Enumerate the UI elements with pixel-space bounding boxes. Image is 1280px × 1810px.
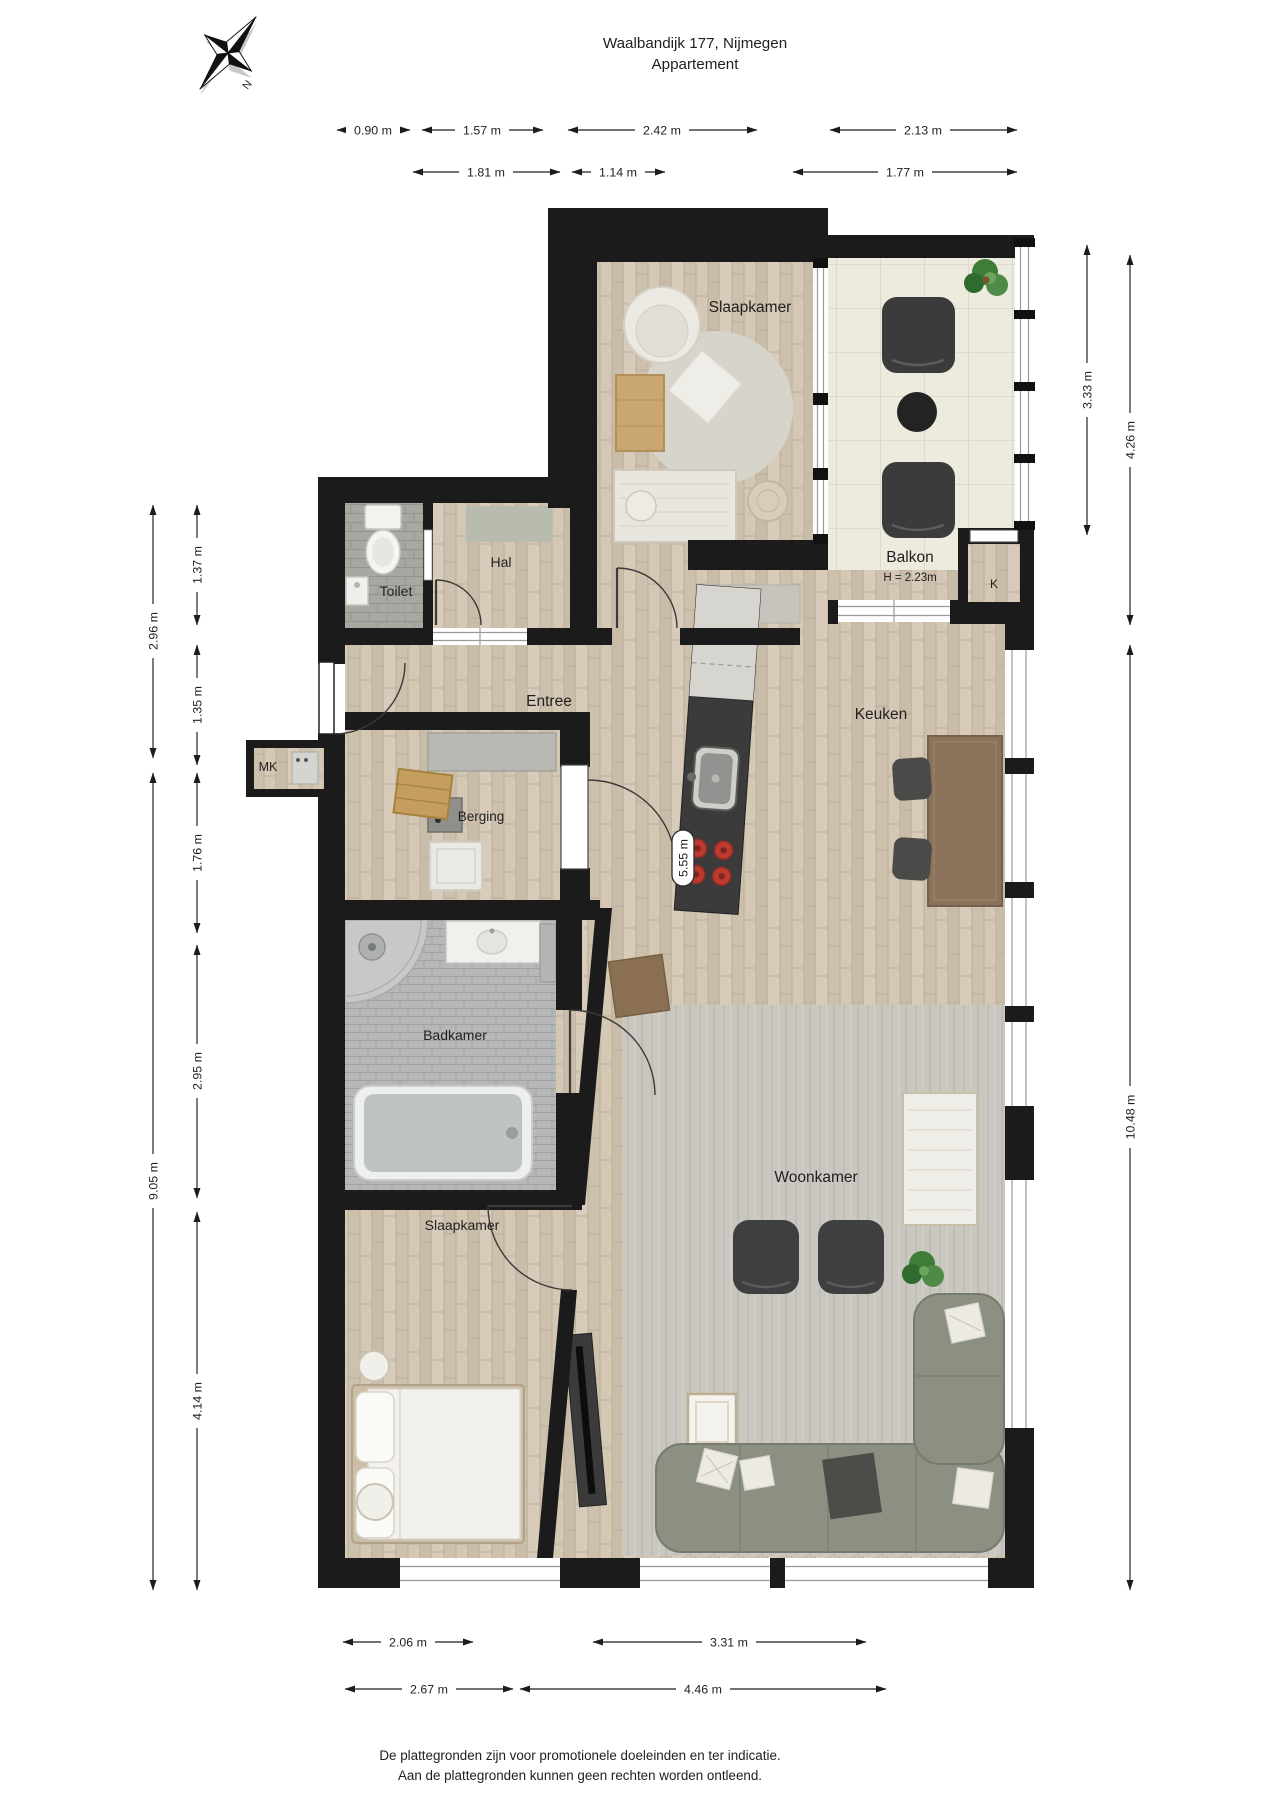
dim-top2-0: 1.81 m — [467, 166, 505, 180]
dim-bottom1-0: 2.06 m — [389, 1636, 427, 1650]
sofa-throw — [822, 1453, 882, 1520]
dim-top1-3: 2.13 m — [904, 124, 942, 138]
dim-bottom2-0: 2.67 m — [410, 1683, 448, 1697]
label-slaapkamer-top: Slaapkamer — [709, 299, 792, 316]
balcony-closet — [968, 530, 1020, 602]
hal-rug — [466, 506, 552, 542]
blanket-roll — [626, 491, 656, 521]
dim-left-inner-2: 1.76 m — [191, 834, 205, 872]
dim-left-outer-0: 2.96 m — [147, 612, 161, 650]
dim-left-inner-3: 2.95 m — [191, 1052, 205, 1090]
balcony-sliding-door — [838, 600, 950, 622]
label-toilet: Toilet — [380, 583, 413, 599]
label-berging: Berging — [458, 809, 505, 824]
label-balkon-height: H = 2.23m — [883, 572, 936, 584]
sofa-pillow-1 — [696, 1448, 737, 1489]
sofa-pillow-3 — [945, 1303, 985, 1343]
dim-bottom1-1: 3.31 m — [710, 1636, 748, 1650]
sofa-pillow-2 — [740, 1456, 775, 1491]
floorplan-page: N Waalbandijk 177, Nijmegen Appartement — [0, 0, 1280, 1810]
pouf — [748, 481, 788, 521]
title-type: Appartement — [652, 56, 740, 73]
wash-basin — [477, 930, 507, 954]
window-bedroom-balcony — [813, 258, 828, 544]
label-entree: Entree — [526, 693, 572, 710]
dim-left-inner-4: 4.14 m — [191, 1382, 205, 1420]
sideboard — [903, 1093, 977, 1225]
label-hal: Hal — [490, 554, 511, 570]
dim-top2-1: 1.14 m — [599, 166, 637, 180]
dim-left-inner-1: 1.35 m — [191, 686, 205, 724]
island-dimension-label: 5.55 m — [677, 839, 691, 877]
label-woonkamer: Woonkamer — [774, 1169, 857, 1186]
balcony-railing — [1014, 238, 1035, 530]
bottom-wall-windows — [400, 1558, 988, 1588]
label-balkon: Balkon — [886, 549, 933, 566]
label-meterkast: MK — [259, 760, 278, 774]
dim-top1-2: 2.42 m — [643, 124, 681, 138]
label-kast: K — [990, 577, 998, 591]
dim-left-inner-0: 1.37 m — [191, 546, 205, 584]
dim-top1-0: 0.90 m — [354, 124, 392, 138]
balcony-table — [897, 392, 937, 432]
hall-sliding-door — [433, 628, 527, 645]
label-badkamer: Badkamer — [423, 1027, 487, 1043]
label-slaapkamer-bottom: Slaapkamer — [425, 1217, 500, 1233]
title-address: Waalbandijk 177, Nijmegen — [603, 35, 787, 52]
bathroom-cabinet — [540, 924, 556, 982]
corridor-mat — [608, 955, 669, 1018]
bathtub-drain — [506, 1127, 518, 1139]
footer-line-1: De plattegronden zijn voor promotionele … — [379, 1748, 780, 1763]
dim-right-outer-1: 10.48 m — [1124, 1095, 1138, 1140]
dim-top1-1: 1.57 m — [463, 124, 501, 138]
closet-door — [970, 530, 1018, 542]
dining-table — [928, 736, 1002, 906]
dim-right-inner-0: 3.33 m — [1081, 371, 1095, 409]
bedside-stool-1 — [359, 1351, 389, 1381]
dim-top2-2: 1.77 m — [886, 166, 924, 180]
meter-box — [292, 752, 318, 784]
bedside-stool-2 — [357, 1484, 393, 1520]
wooden-crate — [394, 769, 453, 819]
dining-chair-1 — [892, 757, 933, 802]
toilet-sink — [346, 577, 368, 605]
toilet-pocket-door — [424, 530, 432, 580]
toilet-tank — [365, 505, 401, 529]
dim-right-outer-0: 4.26 m — [1124, 421, 1138, 459]
dresser — [616, 375, 664, 451]
footer-line-2: Aan de plattegronden kunnen geen rechten… — [398, 1768, 762, 1783]
sofa-pillow-4 — [953, 1468, 994, 1509]
dim-left-outer-1: 9.05 m — [147, 1162, 161, 1200]
floorplan-canvas: N Waalbandijk 177, Nijmegen Appartement — [0, 0, 1280, 1810]
island-dimension: 5.55 m — [672, 830, 694, 886]
label-entree-height: H = 2.46m — [519, 714, 572, 726]
bed-pillow-1 — [356, 1392, 394, 1462]
storage-counter — [428, 733, 556, 771]
label-keuken: Keuken — [855, 706, 908, 723]
dining-chair-2 — [892, 837, 933, 882]
dim-bottom2-1: 4.46 m — [684, 1683, 722, 1697]
